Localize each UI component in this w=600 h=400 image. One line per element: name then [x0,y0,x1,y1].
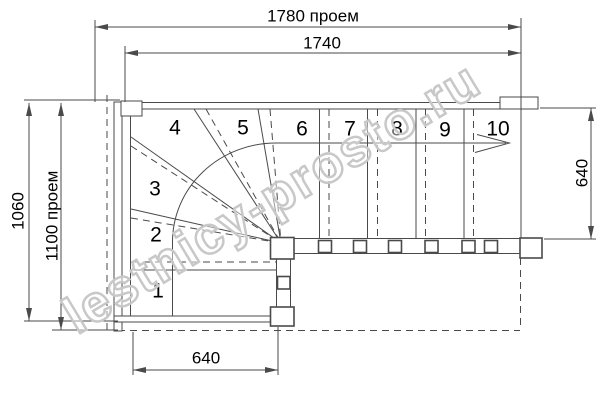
baluster [389,241,402,253]
step-label-10: 10 [486,119,509,140]
bottom-post [271,307,295,326]
step-label-7: 7 [344,119,356,140]
dim-left-inner-label: 1100 проем [44,171,61,262]
walk-line [173,135,510,317]
newel-post [271,238,295,260]
railing [271,238,543,327]
step-label-3: 3 [149,179,161,200]
dim-left-outer-label: 1060 [10,192,27,230]
baluster [462,241,475,253]
dim-bottom-label: 640 [192,350,220,367]
dim-top-inner-label: 1740 [303,35,341,52]
step-label-6: 6 [296,119,308,140]
step-label-9: 9 [439,120,451,141]
end-post [520,238,542,258]
step-label-4: 4 [169,118,181,139]
baluster [425,241,438,253]
baluster [319,241,332,253]
baluster [354,241,367,253]
stair-plan-canvas: 1780 проем 1740 1060 1100 проем 640 640 … [0,0,600,400]
stair-plan-drawing [0,0,600,400]
step-label-2: 2 [150,225,162,246]
baluster [485,241,498,253]
dim-top-outer-label: 1780 проем [267,8,359,25]
dimension-lines [24,18,596,375]
baluster [278,277,291,290]
dim-right-label: 640 [574,159,591,187]
step-label-5: 5 [237,118,249,139]
step-label-1: 1 [152,281,164,302]
step-label-8: 8 [391,119,403,140]
